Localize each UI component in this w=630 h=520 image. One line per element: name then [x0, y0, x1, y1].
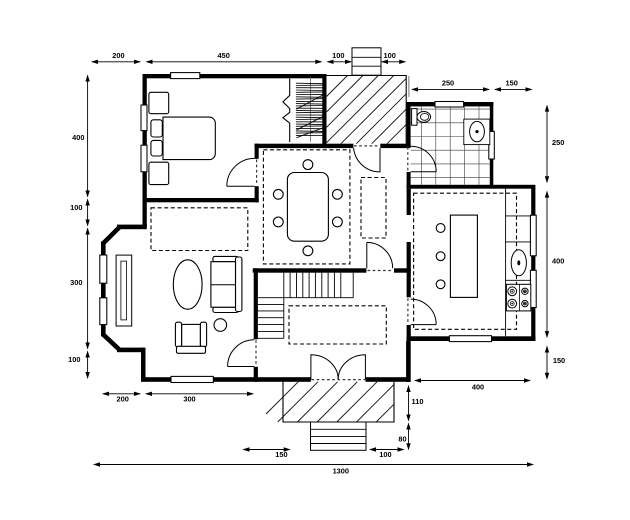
- svg-text:100: 100: [332, 51, 344, 60]
- svg-text:150: 150: [275, 450, 287, 459]
- svg-text:400: 400: [72, 133, 84, 142]
- svg-text:100: 100: [379, 450, 391, 459]
- svg-text:400: 400: [552, 257, 564, 266]
- svg-text:150: 150: [506, 79, 518, 88]
- svg-text:400: 400: [472, 382, 484, 391]
- svg-text:100: 100: [68, 355, 80, 364]
- svg-text:300: 300: [70, 278, 82, 287]
- svg-text:1300: 1300: [333, 466, 349, 475]
- svg-text:100: 100: [70, 203, 82, 212]
- svg-text:100: 100: [384, 51, 396, 60]
- svg-text:300: 300: [183, 394, 195, 403]
- svg-text:80: 80: [398, 435, 406, 444]
- svg-text:110: 110: [412, 397, 424, 406]
- svg-text:250: 250: [442, 78, 454, 87]
- svg-text:250: 250: [552, 138, 564, 147]
- svg-text:450: 450: [218, 51, 230, 60]
- svg-text:150: 150: [553, 356, 565, 365]
- svg-text:200: 200: [112, 51, 124, 60]
- svg-text:200: 200: [117, 395, 129, 404]
